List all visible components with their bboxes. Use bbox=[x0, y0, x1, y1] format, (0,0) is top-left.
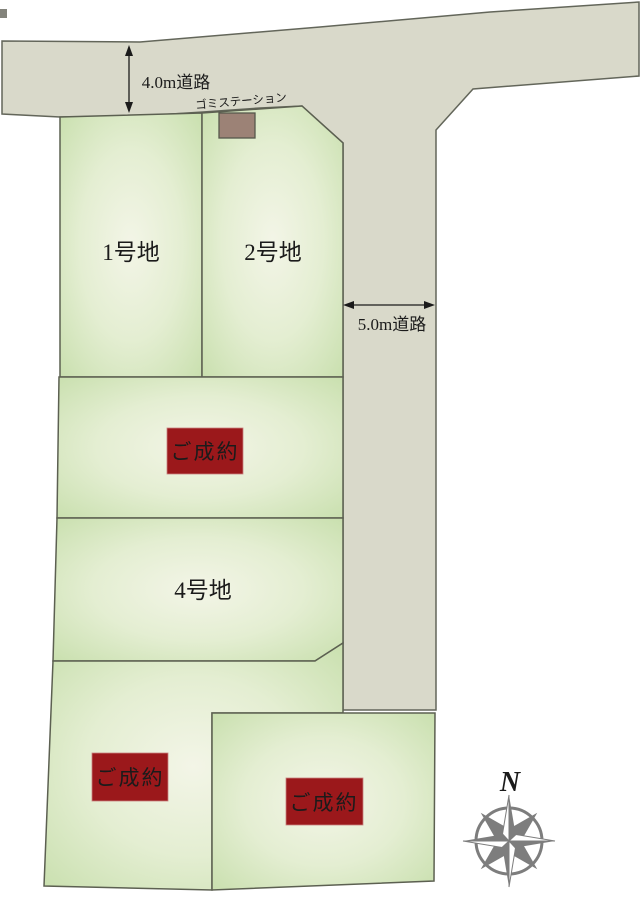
lot-3-sold-label: ご成約 bbox=[171, 440, 240, 464]
garbage-station-box bbox=[219, 113, 255, 138]
lot-5-sold-label: ご成約 bbox=[96, 766, 165, 790]
lot-6-sold-badge: ご成約 bbox=[286, 778, 363, 825]
lot-1-label: 1号地 bbox=[102, 240, 160, 265]
lot-2-label: 2号地 bbox=[244, 240, 302, 265]
edge-artifact bbox=[0, 9, 7, 18]
site-plan-drawing: ゴミステーション 4.0m道路 5.0m道路 1号地 2号地 4号地 ご成約 ご… bbox=[0, 0, 641, 900]
compass-north-label: N bbox=[499, 767, 522, 798]
top-road-label: 4.0m道路 bbox=[142, 73, 210, 92]
compass-rose-icon bbox=[463, 795, 555, 887]
lot-4-label: 4号地 bbox=[174, 578, 232, 603]
lot-3-sold-badge: ご成約 bbox=[167, 428, 243, 474]
lot-5-sold-badge: ご成約 bbox=[92, 753, 168, 801]
lot-6-sold-label: ご成約 bbox=[290, 791, 359, 815]
site-plan-page: ゴミステーション 4.0m道路 5.0m道路 1号地 2号地 4号地 ご成約 ご… bbox=[0, 0, 641, 900]
side-road-label: 5.0m道路 bbox=[358, 315, 426, 334]
